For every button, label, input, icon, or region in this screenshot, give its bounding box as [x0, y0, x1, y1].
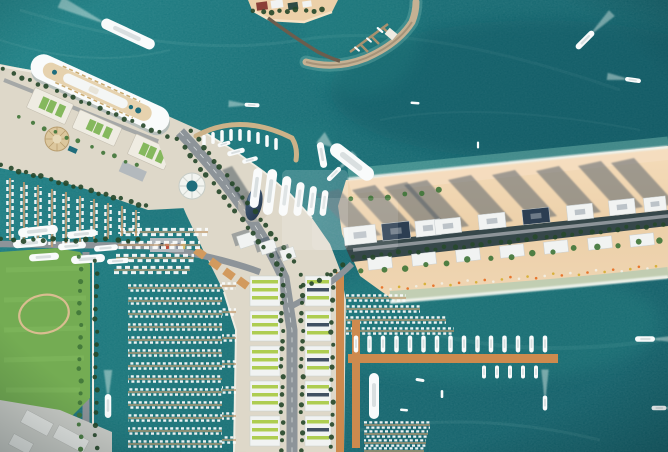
scene-canvas	[0, 0, 668, 452]
aerial-harbour-photo: Aerial view of a harbour development wit…	[0, 0, 668, 452]
vignette	[0, 0, 668, 452]
